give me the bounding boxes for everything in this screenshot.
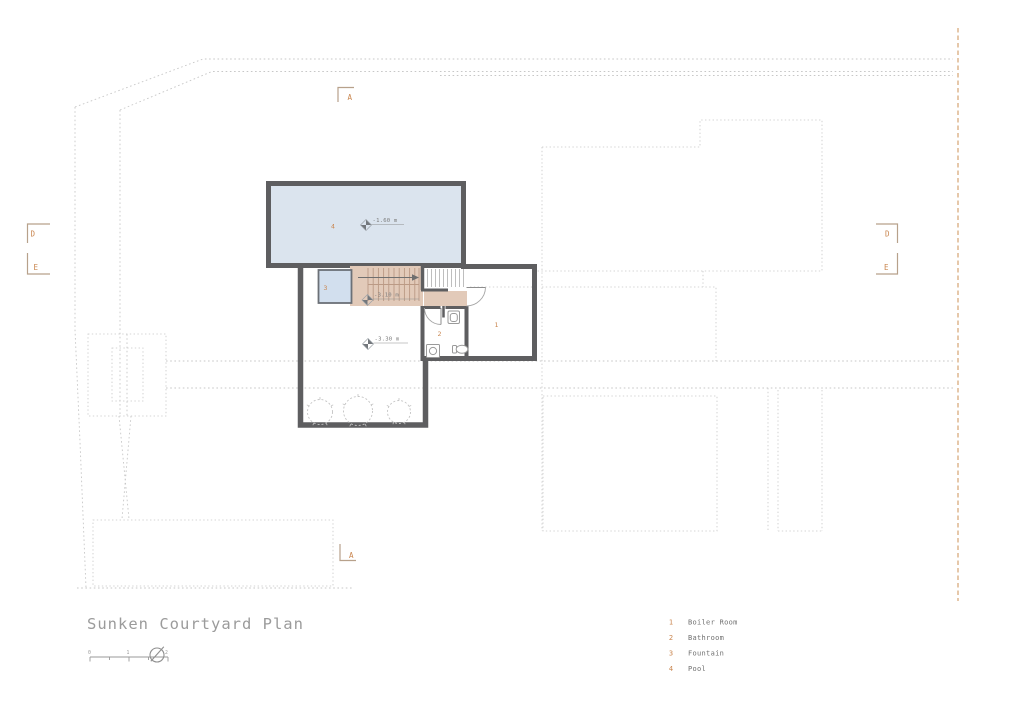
courtyard-trees (307, 394, 411, 426)
scale-tick-0: 0 (88, 650, 91, 656)
section-marker-e-left: E (28, 253, 51, 274)
fountain-number-label: 3 (324, 284, 328, 292)
tree-icon (388, 401, 411, 424)
svg-text:D: D (31, 230, 36, 239)
upper-building-outline (470, 120, 822, 531)
boiler-door (467, 288, 486, 307)
svg-text:Boiler Room: Boiler Room (688, 619, 738, 627)
scale-tick-2: 2 (165, 650, 168, 656)
legend-row-boiler: 1 Boiler Room (669, 619, 738, 627)
tree-icon (308, 400, 333, 425)
pool-number-label: 4 (331, 223, 335, 231)
svg-text:A: A (349, 551, 354, 560)
lower-right-structures (543, 388, 822, 531)
scale-tick-1: 1 (127, 650, 130, 656)
spot-level-marker-icon (363, 339, 374, 350)
boiler-number-label: 1 (495, 321, 499, 329)
boundary-cross-lines (119, 334, 131, 519)
legend-row-pool: 4 Pool (669, 665, 706, 673)
bathroom-number-label: 2 (438, 330, 442, 338)
section-marker-d-left: D (28, 224, 51, 243)
section-marker-a-bottom: A (340, 544, 356, 561)
legend-row-fountain: 3 Fountain (669, 650, 724, 658)
courtyard-level-text: -3.30 m (375, 337, 400, 343)
svg-text:A: A (348, 93, 353, 102)
site-inner-boundary (120, 72, 953, 417)
svg-text:2: 2 (669, 634, 673, 642)
section-markers: A A D E D E (28, 88, 898, 561)
drawing-sheet: -1.60 m -3.10 m -3.30 m 4 3 2 1 A A (0, 0, 1024, 724)
svg-text:1: 1 (669, 619, 673, 627)
legend-row-bathroom: 2 Bathroom (669, 634, 724, 642)
svg-text:D: D (885, 230, 890, 239)
svg-text:4: 4 (669, 665, 673, 673)
section-marker-e-right: E (876, 253, 898, 274)
svg-text:3: 3 (669, 650, 673, 658)
svg-text:E: E (34, 263, 39, 272)
floor-plan-canvas: -1.60 m -3.10 m -3.30 m 4 3 2 1 A A (0, 0, 1024, 724)
sink-fixture (448, 311, 460, 324)
site-outer-boundary (75, 59, 953, 588)
left-structure-outline (88, 334, 166, 416)
stair-upper-treads (428, 269, 464, 287)
svg-text:Bathroom: Bathroom (688, 634, 724, 642)
stair-level-text: -3.10 m (374, 293, 399, 299)
courtyard-level-annotation: -3.30 m (363, 337, 409, 350)
site-boundary-lines (75, 59, 953, 588)
legend: 1 Boiler Room 2 Bathroom 3 Fountain 4 Po… (669, 619, 738, 674)
bottom-left-structure-outline (93, 520, 333, 586)
section-marker-d-right: D (876, 224, 898, 243)
section-marker-a-top: A (338, 88, 354, 103)
washing-machine-fixture (427, 345, 440, 358)
mid-site-lines (166, 361, 953, 388)
svg-text:Fountain: Fountain (688, 650, 724, 658)
page-title: Sunken Courtyard Plan (87, 615, 304, 633)
svg-text:E: E (884, 263, 889, 272)
pool-level-text: -1.60 m (373, 218, 398, 224)
toilet-fixture (453, 345, 468, 353)
svg-text:Pool: Pool (688, 665, 706, 673)
title-block: Sunken Courtyard Plan 0 1 2 (87, 615, 304, 662)
sunken-plan (269, 184, 535, 426)
stair-landing-fill (424, 291, 467, 306)
stair-flight-fill (350, 266, 423, 306)
bathroom-door (425, 308, 442, 325)
north-arrow-icon (150, 647, 164, 662)
tree-icon (344, 397, 373, 426)
